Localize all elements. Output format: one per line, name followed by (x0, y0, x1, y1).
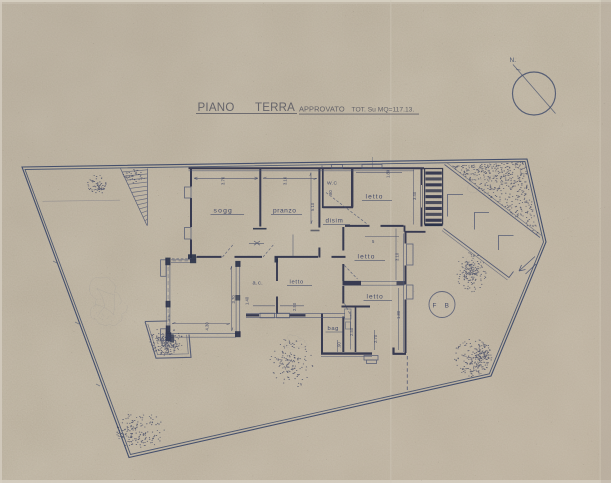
svg-text:1.40: 1.40 (245, 296, 250, 305)
svg-text:3.40: 3.40 (412, 191, 417, 200)
svg-text:TOT. Su MQ=117.13.: TOT. Su MQ=117.13. (352, 107, 415, 114)
svg-text:APPROVATO: APPROVATO (299, 105, 345, 114)
svg-text:1.80: 1.80 (386, 169, 391, 178)
svg-text:letto: letto (290, 280, 304, 286)
svg-text:1.80: 1.80 (396, 310, 401, 319)
svg-text:5.10: 5.10 (310, 202, 315, 211)
svg-text:F B: F B (433, 303, 453, 310)
svg-text:letto: letto (366, 194, 384, 201)
svg-text:3.70: 3.70 (231, 295, 236, 304)
svg-text:.90: .90 (336, 342, 341, 348)
svg-text:3.70: 3.70 (221, 176, 226, 185)
svg-text:3.10: 3.10 (283, 176, 288, 185)
svg-text:letto: letto (358, 254, 376, 261)
svg-text:PIANO: PIANO (198, 102, 235, 114)
svg-text:4.30: 4.30 (205, 322, 210, 331)
svg-text:3.10: 3.10 (394, 252, 399, 261)
svg-text:2.50: 2.50 (349, 327, 354, 336)
svg-text:.80: .80 (328, 190, 333, 196)
svg-text:N.: N. (510, 57, 517, 64)
svg-text:sogg: sogg (214, 208, 234, 215)
svg-text:TERRA: TERRA (255, 102, 295, 114)
svg-text:2.70: 2.70 (373, 334, 378, 343)
svg-text:2.50: 2.50 (292, 302, 297, 311)
svg-text:W.C: W.C (327, 181, 338, 187)
svg-text:pranzo: pranzo (273, 208, 296, 215)
svg-text:letto: letto (367, 294, 384, 301)
svg-text:bag: bag (328, 326, 339, 332)
svg-text:disim: disim (326, 218, 344, 225)
svg-text:a.c.: a.c. (253, 281, 264, 287)
